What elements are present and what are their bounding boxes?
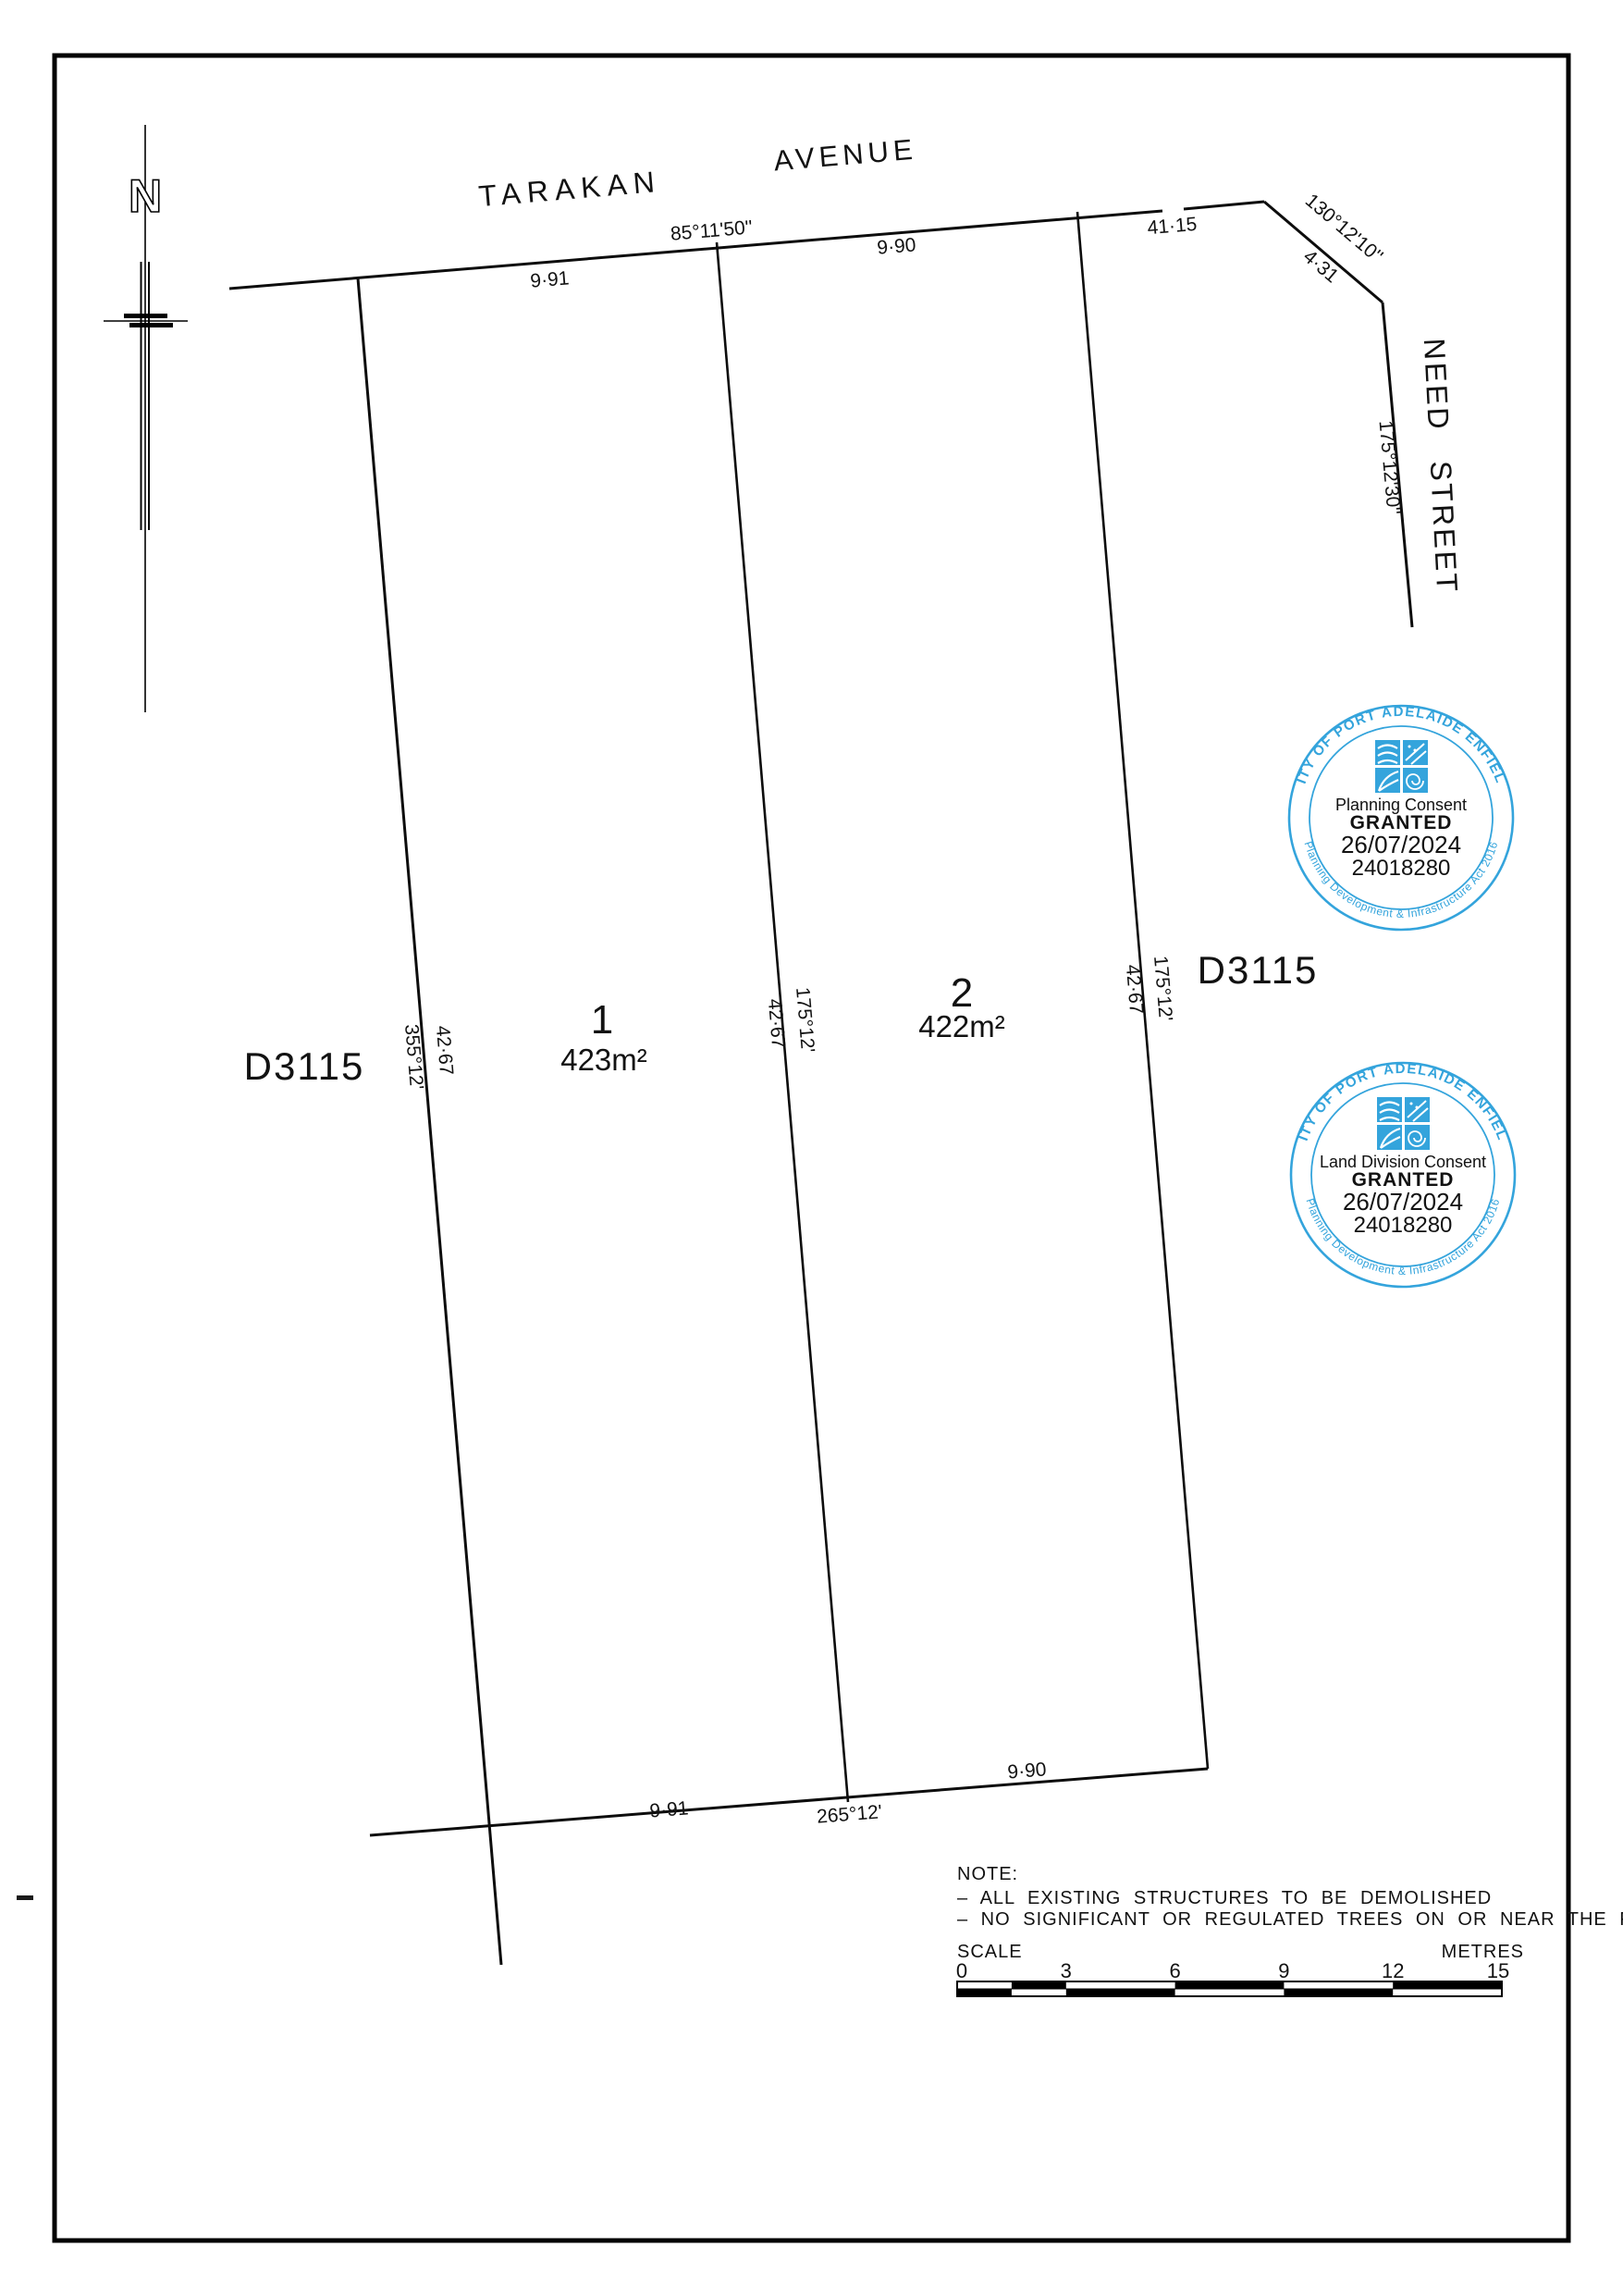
- deposited-plan-right: D3115: [1198, 948, 1319, 992]
- note-title: NOTE:: [957, 1864, 1018, 1884]
- scale-tick-15: 15: [1487, 1959, 1509, 1982]
- scale-cell: [1284, 1989, 1393, 1996]
- street-name-avenue: AVENUE: [772, 133, 918, 178]
- scale-tick-0: 0: [956, 1959, 967, 1982]
- stamp2-number: 24018280: [1354, 1213, 1453, 1238]
- survey-plan-page: N TARAKAN AVENUE NEED STREET 85°11'50'' …: [0, 0, 1623, 2296]
- bearing-top: 85°11'50'': [670, 216, 754, 244]
- logo-dot: [1410, 1103, 1413, 1105]
- scale-tick-12: 12: [1382, 1959, 1404, 1982]
- stamp1-council-logo: [1375, 740, 1428, 793]
- lot2-area: 422m²: [918, 1009, 1005, 1043]
- notes-block: NOTE: – ALL EXISTING STRUCTURES TO BE DE…: [957, 1864, 1623, 1930]
- need-street-bearing: 175°12'30'': [1375, 420, 1405, 516]
- lot1-area: 423m²: [560, 1043, 647, 1077]
- scale-cell: [1393, 1981, 1502, 1989]
- land-division-consent-stamp: CITY OF PORT ADELAIDE ENFIELD Planning D…: [1291, 1061, 1515, 1287]
- logo-dot: [1414, 749, 1417, 752]
- logo-dot: [1416, 1106, 1419, 1109]
- note-line-1: – ALL EXISTING STRUCTURES TO BE DEMOLISH…: [957, 1888, 1492, 1908]
- scale-tick-6: 6: [1169, 1959, 1180, 1982]
- rear-lot2-distance: 9·90: [1007, 1759, 1048, 1783]
- west-boundary-line: [358, 278, 501, 1965]
- street-name-tarakan: TARAKAN: [477, 165, 662, 213]
- planning-consent-stamp: CITY OF PORT ADELAIDE ENFIELD Planning D…: [1289, 704, 1513, 930]
- stamp1-type: Planning Consent: [1335, 796, 1467, 814]
- edge-mark: [17, 1895, 33, 1900]
- north-label: N: [129, 170, 162, 222]
- mid-bearing: 175°12': [792, 986, 818, 1053]
- scale-tick-9: 9: [1278, 1959, 1289, 1982]
- street-traverse-distance: 41·15: [1147, 214, 1198, 239]
- rear-bearing: 265°12': [816, 1801, 882, 1827]
- frontage-lot1: 9·91: [530, 267, 571, 291]
- note-line-2: – NO SIGNIFICANT OR REGULATED TREES ON O…: [957, 1909, 1623, 1930]
- east-bearing: 175°12': [1150, 955, 1176, 1021]
- street-name-need: NEED STREET: [1418, 338, 1464, 596]
- west-bearing: 355°12': [400, 1023, 427, 1090]
- scale-tick-3: 3: [1061, 1959, 1072, 1982]
- lot1-number: 1: [591, 997, 613, 1043]
- mid-distance: 42·67: [764, 998, 789, 1049]
- rear-boundary-line: [370, 1769, 1208, 1835]
- tarakan-street-line: [229, 202, 1264, 289]
- west-distance: 42·67: [432, 1025, 457, 1076]
- land-division-plan-drawing: N TARAKAN AVENUE NEED STREET 85°11'50'' …: [0, 0, 1623, 2296]
- scale-cell: [1012, 1981, 1066, 1989]
- stamp2-date: 26/07/2024: [1343, 1188, 1463, 1216]
- corner-distance: 4·31: [1299, 246, 1343, 288]
- scale-cell: [957, 1989, 1012, 1996]
- east-distance: 42·67: [1122, 964, 1147, 1015]
- scale-units-label: METRES: [1442, 1942, 1524, 1962]
- scale-cell: [1066, 1989, 1175, 1996]
- frontage-lot2: 9·90: [877, 234, 917, 258]
- scale-bar: SCALE METRES 0 3 6 9 12 15: [956, 1942, 1524, 1996]
- rear-lot1-distance: 9·91: [649, 1797, 690, 1821]
- stamp2-type: Land Division Consent: [1320, 1153, 1486, 1171]
- logo-dot: [1408, 746, 1411, 748]
- stamp2-council-logo: [1377, 1097, 1430, 1150]
- scale-cell: [1175, 1981, 1285, 1989]
- deposited-plan-left: D3115: [244, 1044, 365, 1088]
- stamp1-date: 26/07/2024: [1341, 831, 1461, 858]
- stamp1-number: 24018280: [1352, 856, 1451, 881]
